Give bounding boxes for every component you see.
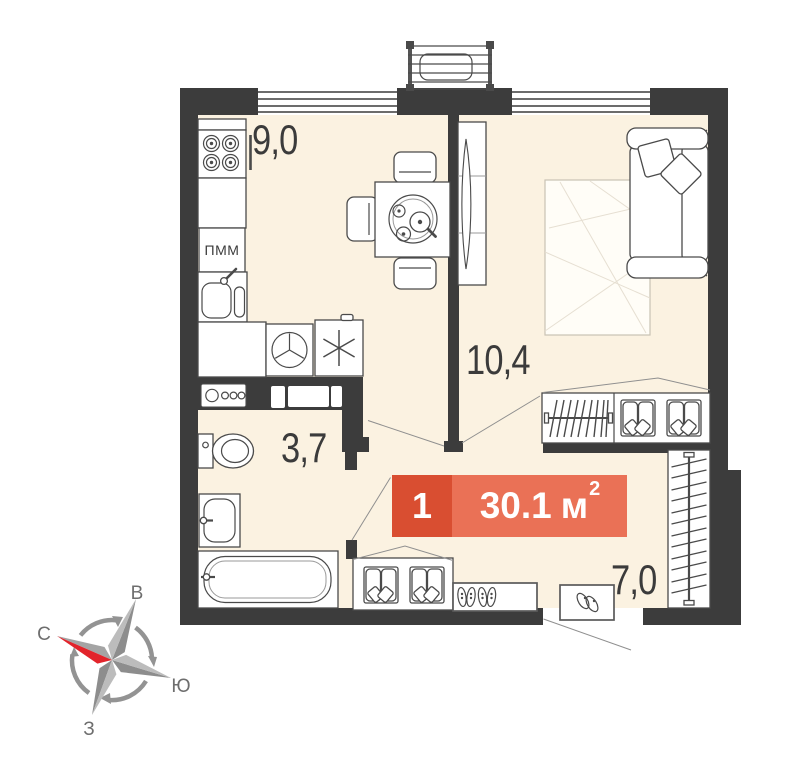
area-unit: м2 bbox=[561, 485, 600, 527]
shelf-unit-icon bbox=[621, 400, 655, 436]
floor-plan-svg: В С Ю З bbox=[0, 0, 800, 777]
hall-closet bbox=[353, 558, 453, 610]
hallway-area-label: 7,0 bbox=[611, 556, 656, 604]
washing-machine-icon bbox=[266, 324, 313, 376]
wall-niche bbox=[271, 386, 342, 408]
shoe-cabinet-icon bbox=[453, 583, 537, 611]
kitchen-counter bbox=[198, 119, 246, 130]
toilet-icon bbox=[198, 434, 254, 468]
hanger-rail-icon bbox=[668, 450, 710, 608]
area-superscript: 2 bbox=[589, 478, 600, 500]
bathtub-icon bbox=[198, 551, 338, 608]
dining-table-icon bbox=[375, 182, 450, 257]
kitchen-area-label: 9,0 bbox=[252, 116, 297, 164]
kitchen-window-icon bbox=[258, 88, 397, 115]
total-area-badge: 1 30.1 м2 bbox=[392, 475, 627, 537]
room-count-badge: 1 bbox=[392, 475, 452, 537]
floor-plan-canvas: В С Ю З 9,0 10,4 3,7 7,0 ПММ 1 30.1 м2 bbox=[0, 0, 800, 777]
room-window-icon bbox=[512, 88, 650, 115]
compass-east-label: В bbox=[131, 583, 144, 604]
stove-icon bbox=[198, 130, 246, 178]
door-mat-icon bbox=[560, 585, 614, 620]
washbasin-icon bbox=[199, 494, 240, 547]
kitchen-counter bbox=[198, 178, 246, 228]
utility-panel-icon bbox=[201, 384, 246, 407]
living-room-area-label: 10,4 bbox=[466, 336, 530, 384]
bathroom-area-label: 3,7 bbox=[281, 424, 326, 472]
ac-basket-icon bbox=[406, 41, 494, 91]
shelf-unit-icon bbox=[364, 567, 398, 603]
kitchen-sink-icon bbox=[198, 269, 247, 322]
shelf-unit-icon bbox=[410, 567, 444, 603]
compass-south-label: Ю bbox=[171, 676, 190, 697]
total-area-value: 30.1 м2 bbox=[452, 475, 627, 537]
wardrobe-hangers-icon bbox=[542, 393, 710, 443]
compass-west-label: З bbox=[83, 719, 94, 740]
kitchen-counter bbox=[198, 322, 266, 377]
compass-rose-icon: В С Ю З bbox=[37, 583, 190, 740]
shelf-unit-icon bbox=[667, 400, 701, 436]
dishwasher-label: ПММ bbox=[199, 228, 245, 272]
tv-stand-icon bbox=[458, 122, 486, 285]
sofa-icon bbox=[627, 128, 708, 278]
compass-north-label: С bbox=[37, 624, 51, 645]
fridge-snowflake-icon bbox=[315, 315, 363, 377]
area-value: 30.1 bbox=[480, 485, 552, 527]
